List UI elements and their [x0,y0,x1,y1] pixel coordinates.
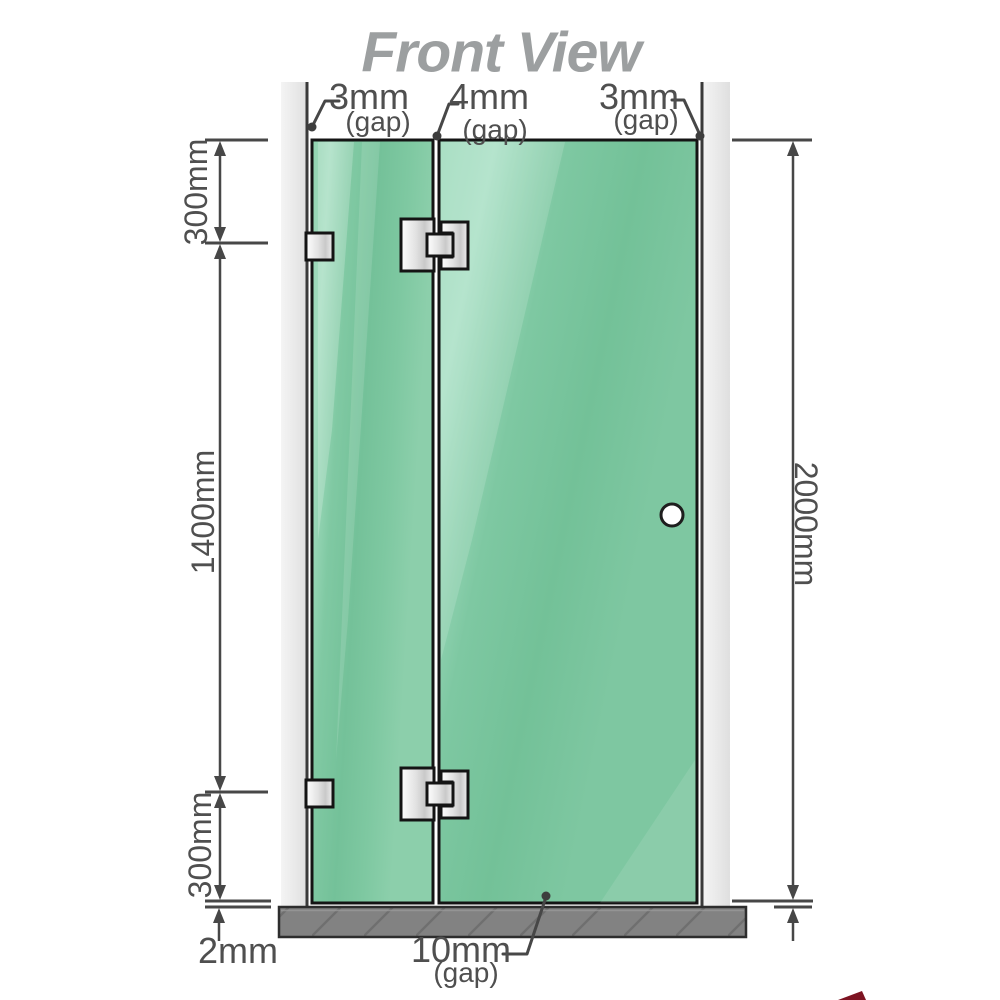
gap-top-right-suffix: (gap) [613,106,678,134]
gap-bottom-door-suffix: (gap) [433,959,498,987]
gap-top-left-suffix: (gap) [345,108,410,136]
dimension-floor-clearance: 2mm [198,933,278,969]
gap-top-middle-suffix: (gap) [462,116,527,144]
bottom-hinge [401,768,468,820]
floor [279,907,746,937]
gap-top-middle-value: 4mm [449,79,529,115]
right-wall [702,82,730,907]
dimension-left-top: 300mm [180,139,212,246]
door-glass-panel [439,140,697,903]
dimension-left-middle: 1400mm [187,450,219,575]
diagram-canvas [0,0,1000,1000]
diagram-title: Front View [361,25,640,82]
dimension-right-full: 2000mm [790,462,822,587]
door-knob [661,504,683,526]
top-hinge [401,219,468,271]
bottom-wall-bracket [306,780,333,807]
logo-sliver [838,991,866,1000]
dimension-left-bottom: 300mm [184,792,216,899]
front-view-diagram: Front View 3mm (gap) 4mm (gap) 3mm (gap)… [0,0,1000,1000]
top-wall-bracket [306,233,333,260]
left-wall [281,82,307,907]
